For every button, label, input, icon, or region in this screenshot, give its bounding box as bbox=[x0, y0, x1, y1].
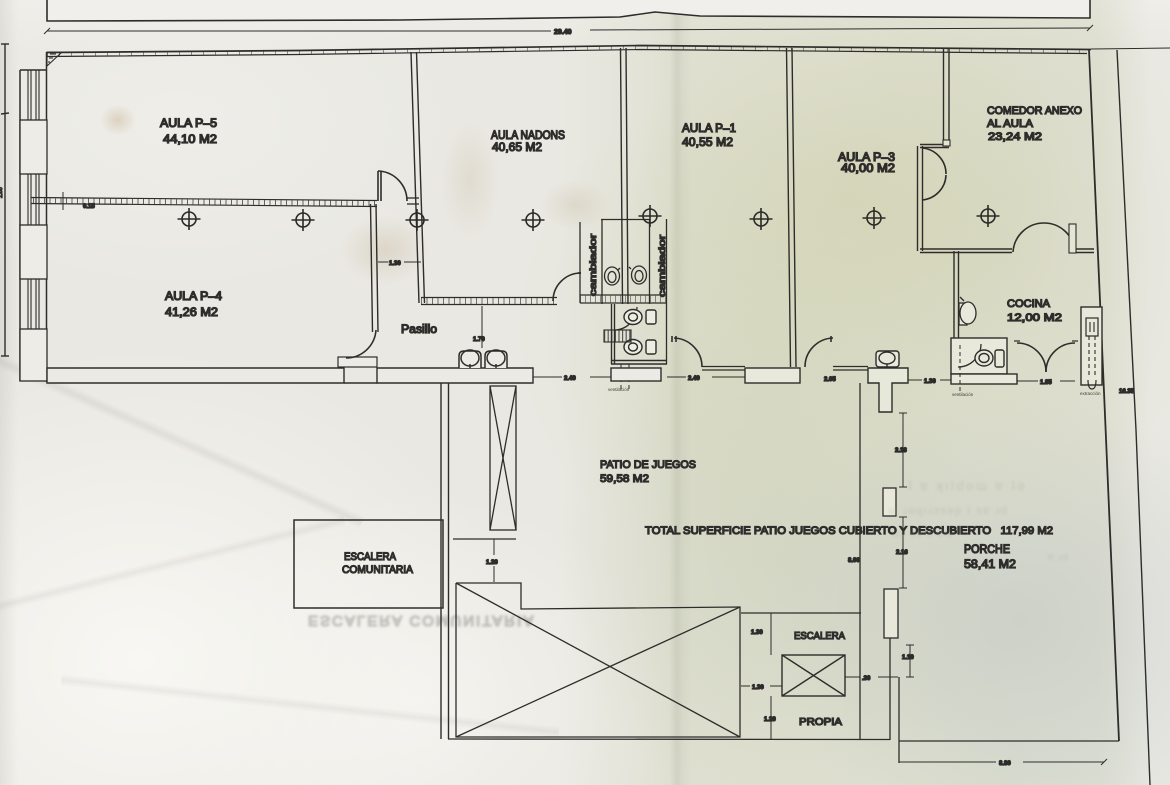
svg-text:uɐ oɐ ɔ ǝʇu: uɐ oɐ ɔ ǝʇu bbox=[893, 529, 953, 540]
svg-text:TOTAL SUPERFICIE PATIO JUEGOS: TOTAL SUPERFICIE PATIO JUEGOS CUBIERTO Y… bbox=[645, 525, 1053, 537]
svg-text:AL AULA: AL AULA bbox=[987, 118, 1034, 130]
svg-text:ventilación: ventilación bbox=[608, 387, 630, 392]
svg-text:ventilación: ventilación bbox=[952, 392, 974, 397]
svg-text:40,00 M2: 40,00 M2 bbox=[841, 163, 895, 175]
svg-text:extracción: extracción bbox=[1080, 391, 1101, 396]
svg-text:ESCALERA: ESCALERA bbox=[794, 630, 845, 642]
svg-text:Pasillo: Pasillo bbox=[401, 324, 437, 336]
svg-text:1.00: 1.00 bbox=[0, 187, 4, 198]
svg-text:1.30: 1.30 bbox=[752, 685, 764, 691]
svg-text:COMUNITARIA: COMUNITARIA bbox=[342, 564, 414, 576]
svg-text:41,26 M2: 41,26 M2 bbox=[165, 307, 218, 319]
svg-text:1.30: 1.30 bbox=[751, 630, 763, 636]
svg-text:29.40: 29.40 bbox=[554, 29, 572, 36]
svg-text:2.16: 2.16 bbox=[895, 448, 907, 454]
svg-text:40,65 M2: 40,65 M2 bbox=[492, 142, 542, 154]
svg-text:1.85: 1.85 bbox=[1040, 380, 1052, 386]
svg-text:12,00 M2: 12,00 M2 bbox=[1007, 312, 1062, 324]
svg-text:1.30: 1.30 bbox=[924, 379, 936, 385]
svg-text:1.70: 1.70 bbox=[473, 337, 485, 343]
svg-text:AULA NADONS: AULA NADONS bbox=[491, 130, 565, 142]
svg-text:PROPIA: PROPIA bbox=[799, 716, 842, 728]
svg-text:40,55 M2: 40,55 M2 bbox=[682, 137, 733, 149]
svg-text:cambiador: cambiador bbox=[588, 234, 599, 296]
svg-text:ESCALERA: ESCALERA bbox=[344, 551, 397, 563]
svg-text:2.40: 2.40 bbox=[688, 376, 700, 382]
svg-text:8.80: 8.80 bbox=[999, 761, 1011, 767]
svg-text:COCINA: COCINA bbox=[1007, 298, 1051, 310]
svg-text:.30: .30 bbox=[862, 676, 871, 682]
svg-text:1.20: 1.20 bbox=[764, 717, 776, 723]
svg-text:COMEDOR ANEXO: COMEDOR ANEXO bbox=[987, 105, 1082, 117]
svg-text:2.05: 2.05 bbox=[824, 377, 836, 383]
svg-text:PATIO DE JUEGOS: PATIO DE JUEGOS bbox=[600, 459, 696, 471]
svg-text:16.35: 16.35 bbox=[1119, 389, 1135, 395]
svg-text:PORCHE: PORCHE bbox=[964, 544, 1010, 556]
svg-text:AULA P–4: AULA P–4 bbox=[165, 291, 223, 303]
svg-text:2.16: 2.16 bbox=[896, 550, 908, 556]
svg-text:AULA P–1: AULA P–1 bbox=[682, 123, 736, 135]
svg-text:58,41 M2: 58,41 M2 bbox=[964, 559, 1016, 571]
svg-text:1.10: 1.10 bbox=[902, 655, 914, 661]
svg-text:ESCALERA COMUNITARIA: ESCALERA COMUNITARIA bbox=[308, 612, 535, 629]
svg-text:1.30: 1.30 bbox=[389, 261, 401, 267]
svg-text:23,24 M2: 23,24 M2 bbox=[988, 131, 1042, 143]
svg-text:AULA P–5: AULA P–5 bbox=[160, 118, 217, 130]
svg-text:8.00: 8.00 bbox=[848, 558, 860, 564]
svg-text:ɐ ɹǝ: ɐ ɹǝ bbox=[1048, 552, 1069, 563]
svg-text:ʇ ɐ ʞıldoɯ ɐ ʇǝ: ʇ ɐ ʞıldoɯ ɐ ʇǝ bbox=[908, 478, 1027, 493]
svg-text:2.40: 2.40 bbox=[564, 376, 576, 382]
svg-text:59,58 M2: 59,58 M2 bbox=[600, 473, 649, 485]
svg-text:ɯ ɹǝqıɹɔsǝp ʇ sɐ ɹd: ɯ ɹǝqıɹɔsǝp ʇ sɐ ɹd bbox=[888, 505, 1008, 517]
svg-text:1.20: 1.20 bbox=[486, 560, 498, 566]
svg-text:44,10 M2: 44,10 M2 bbox=[163, 134, 217, 146]
svg-text:0.15: 0.15 bbox=[83, 204, 95, 210]
svg-text:cambiador: cambiador bbox=[657, 235, 668, 297]
